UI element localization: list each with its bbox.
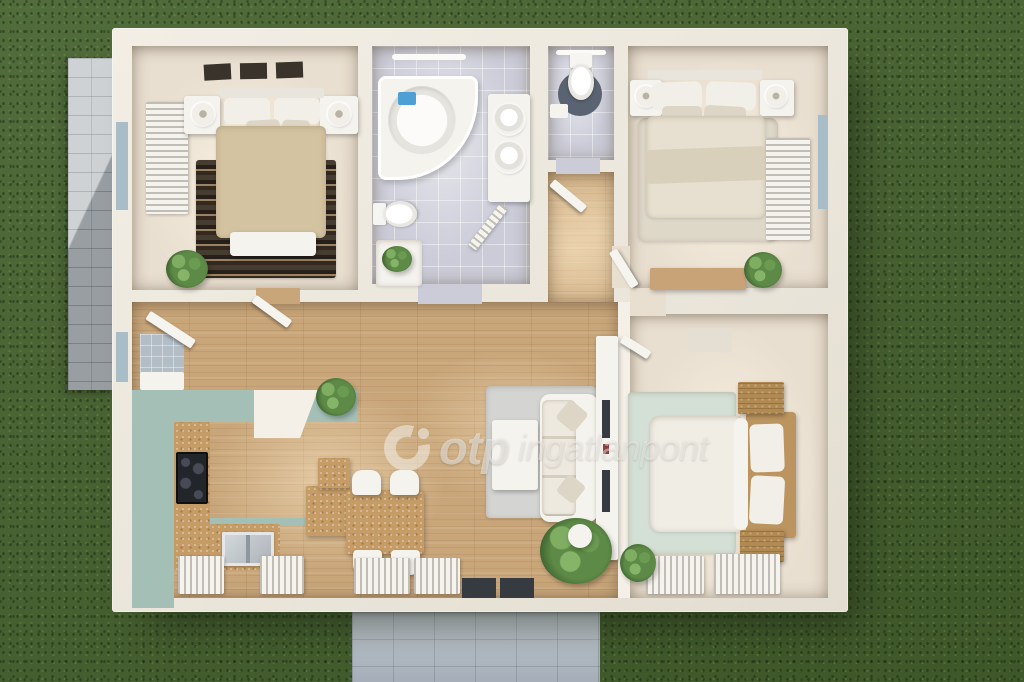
plant xyxy=(744,252,782,288)
plant-pot xyxy=(568,524,592,548)
nightstand-wood xyxy=(738,382,784,414)
kitchen-counter-teal xyxy=(132,390,174,608)
dining-table xyxy=(346,490,424,554)
radiator-south xyxy=(260,556,304,594)
lamp xyxy=(192,103,214,125)
soap-tray xyxy=(398,92,416,105)
picture-frame xyxy=(240,63,267,79)
kitchen-island xyxy=(306,486,350,536)
body-pillow xyxy=(734,418,748,530)
doorway-bathroom xyxy=(418,284,482,304)
coffee-table xyxy=(492,420,538,490)
plant xyxy=(166,250,208,288)
window-west xyxy=(116,332,128,382)
bed-throw xyxy=(645,146,766,184)
kitchen-island-step xyxy=(318,458,350,488)
radiator-south xyxy=(354,558,410,594)
doorway-bedroom-bottomright xyxy=(630,288,666,316)
pillow xyxy=(749,475,785,525)
lamp xyxy=(328,103,350,125)
window-west xyxy=(116,122,128,210)
dining-chair xyxy=(390,470,419,495)
picture-frame xyxy=(276,62,304,79)
bed-blanket-tan xyxy=(216,126,326,238)
radiator-south xyxy=(714,554,780,594)
radiator-bedroom-topright xyxy=(766,138,810,240)
dresser xyxy=(650,268,746,290)
doorway-wc xyxy=(556,158,600,174)
bed-headboard xyxy=(648,70,762,80)
toilet-wc xyxy=(566,54,596,100)
picture-frame xyxy=(204,63,232,80)
sink-round xyxy=(494,142,524,172)
scene-layer xyxy=(0,0,1024,682)
plant xyxy=(620,544,656,582)
bed-bench xyxy=(230,232,316,256)
window-east xyxy=(818,115,828,209)
cistern-box xyxy=(550,104,568,118)
plant xyxy=(382,246,412,272)
entrance-window xyxy=(462,578,496,598)
plant xyxy=(316,378,356,416)
bed-headboard xyxy=(220,88,324,98)
floorplan-render: otp ingatlanpont xyxy=(0,0,1024,682)
ceiling-light-bar xyxy=(392,54,466,60)
sink-round xyxy=(494,104,524,134)
radiator-south xyxy=(414,558,460,594)
lamp xyxy=(766,86,786,106)
radiator-south xyxy=(178,556,224,594)
entry-cabinet xyxy=(140,372,184,390)
console-decor xyxy=(602,400,610,438)
bed-duvet xyxy=(650,416,742,532)
toilet-bathroom xyxy=(373,199,417,229)
console-decor xyxy=(602,470,610,512)
dining-chair xyxy=(352,470,381,495)
entrance-window xyxy=(500,578,534,598)
wall-decor xyxy=(688,328,732,352)
console-decor-red xyxy=(603,444,609,454)
cooktop xyxy=(176,452,208,504)
pillow xyxy=(749,423,785,472)
radiator-bedroom-topleft xyxy=(146,102,188,214)
